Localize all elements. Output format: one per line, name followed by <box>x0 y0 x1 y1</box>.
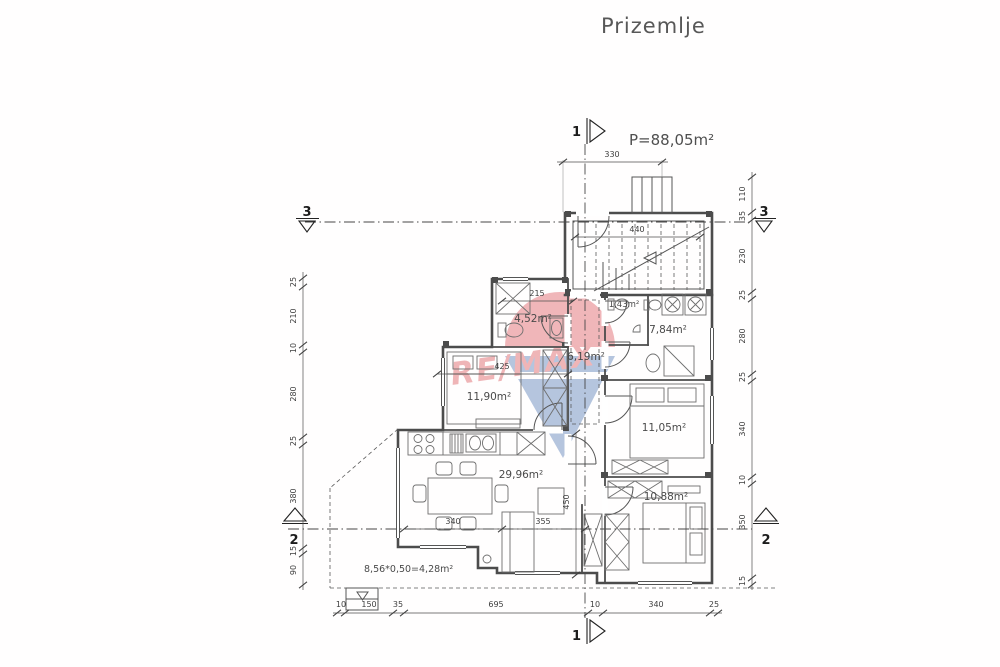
dim-label: 340 <box>738 421 747 436</box>
section-marker-2-left: 2 <box>282 508 308 548</box>
shower-top <box>496 283 530 314</box>
chimney <box>483 555 491 563</box>
section-marker-1-top: 1 <box>572 118 605 144</box>
total-area-label: P=88,05m² <box>629 131 714 149</box>
dim-label: 10 <box>590 600 600 609</box>
window <box>709 396 716 444</box>
washing-machines <box>662 294 706 315</box>
section-2-label: 2 <box>761 533 770 548</box>
window <box>503 276 528 283</box>
dim-top-width: 330 <box>557 150 668 212</box>
sink-right <box>646 354 660 372</box>
sofa <box>502 488 564 572</box>
dim-label: 10 <box>738 475 747 485</box>
tv-cabinet <box>584 514 602 566</box>
dim-label: 450 <box>562 494 571 509</box>
dim-label: 350 <box>738 514 747 529</box>
dim-label: 25 <box>289 277 298 287</box>
dim-chain-right: 110 35 230 25 280 25 340 10 350 15 <box>738 172 756 590</box>
dim-label: 35 <box>393 600 403 609</box>
window <box>440 358 447 406</box>
section-3-label: 3 <box>759 205 768 220</box>
dim-label: 25 <box>289 436 298 446</box>
dim-label: 15 <box>738 576 747 586</box>
section-2-label: 2 <box>289 533 298 548</box>
bedroom-right-door <box>605 396 632 423</box>
dim-label: 215 <box>529 289 544 298</box>
dim-label: 280 <box>738 328 747 343</box>
terrace-formula: 8,56*0,50=4,28m² <box>364 564 453 575</box>
sink-wc <box>633 325 640 332</box>
dim-label: 150 <box>361 600 376 609</box>
dim-label: 35 <box>738 211 747 221</box>
kitchen-counter <box>408 432 545 455</box>
dim-label: 340 <box>648 600 663 609</box>
staircase <box>594 177 709 291</box>
dim-label: 280 <box>289 386 298 401</box>
dim-label: 10 <box>336 600 346 609</box>
window <box>420 544 466 551</box>
section-marker-3-right: 3 <box>753 205 776 232</box>
dim-label: 440 <box>629 225 644 234</box>
dim-living-widths: 340 355 <box>400 517 589 532</box>
room-label-hall: 6,19m² <box>567 351 605 363</box>
dim-label: 90 <box>289 565 298 575</box>
dim-label: 355 <box>535 517 550 526</box>
dim-chain-bottom: 10 150 35 695 10 340 25 <box>333 600 722 616</box>
section-marker-3-left: 3 <box>296 205 319 232</box>
room-label-bedroom-left: 11,90m² <box>467 391 512 403</box>
page-title: Prizemlje <box>601 14 706 38</box>
window <box>709 328 716 360</box>
dim-label: 15 <box>289 546 298 556</box>
section-1-label: 1 <box>572 125 581 140</box>
dim-label: 210 <box>289 308 298 323</box>
dim-label: 25 <box>709 600 719 609</box>
room-label-wc: 1,43m² <box>609 300 640 310</box>
room-label-bath-right: 7,84m² <box>649 324 687 336</box>
section-marker-1-bottom: 1 <box>572 618 605 644</box>
terrace-slider-window <box>395 448 402 538</box>
dim-label: 380 <box>289 488 298 503</box>
window <box>515 570 560 577</box>
dim-label: 695 <box>488 600 503 609</box>
dim-label: 25 <box>738 290 747 300</box>
room-label-bath-top: 4,52m² <box>514 313 552 325</box>
section-marker-2-right: 2 <box>753 508 779 548</box>
dim-label: 340 <box>445 517 460 526</box>
dim-label: 10 <box>289 343 298 353</box>
dim-label: 230 <box>738 248 747 263</box>
dim-label: 110 <box>738 186 747 201</box>
room-label-living: 29,96m² <box>499 469 544 481</box>
bidet <box>644 300 661 310</box>
stair-break-line <box>594 227 709 291</box>
section-1-label: 1 <box>572 629 581 644</box>
dim-stair-width: 440 <box>571 225 704 240</box>
floorplan-drawing: RE/MAX <box>0 0 1000 667</box>
room-label-bedroom-right: 11,05m² <box>642 422 687 434</box>
floorplan-page: RE/MAX <box>0 0 1000 667</box>
section-3-label: 3 <box>302 205 311 220</box>
dim-label: 330 <box>604 150 619 159</box>
hall-living-door <box>568 436 596 464</box>
dim-label: 425 <box>494 362 509 371</box>
shower-right <box>664 346 694 376</box>
dim-label: 25 <box>738 372 747 382</box>
window <box>638 580 692 587</box>
room-label-bedroom-bottom: 10,88m² <box>644 491 689 503</box>
